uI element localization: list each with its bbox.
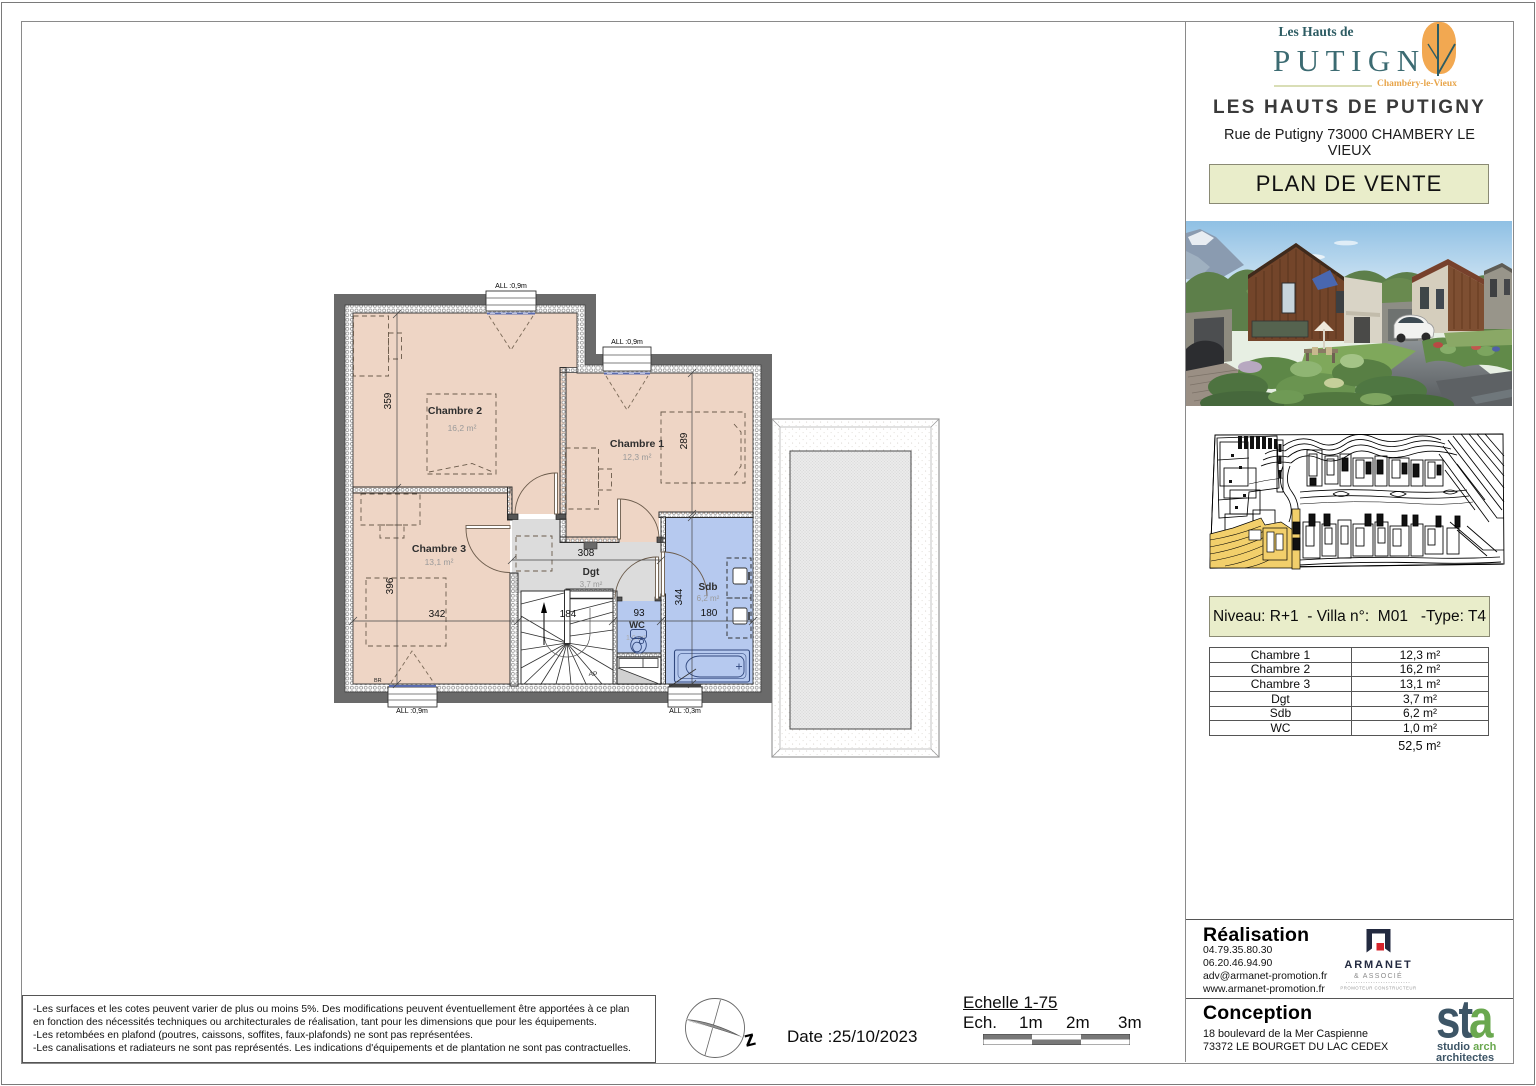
svg-text:architectes: architectes: [1436, 1052, 1494, 1063]
svg-text:Dgt: Dgt: [583, 567, 600, 578]
svg-text:ARMANET: ARMANET: [1344, 959, 1412, 971]
svg-text:180: 180: [701, 608, 718, 619]
svg-text:12,3 m²: 12,3 m²: [623, 452, 652, 462]
svg-text:Chambre 3: Chambre 3: [412, 543, 466, 555]
svg-text:PROMOTEUR CONSTRUCTEUR: PROMOTEUR CONSTRUCTEUR: [1340, 986, 1416, 991]
svg-text:16,2 m²: 16,2 m²: [448, 423, 477, 433]
svg-text:289: 289: [679, 432, 690, 449]
svg-text:Sdb: Sdb: [699, 582, 718, 593]
svg-text:ALL :0,9m: ALL :0,9m: [396, 708, 428, 715]
svg-text:ALL :0,9m: ALL :0,9m: [495, 283, 527, 290]
svg-text:ALL :0,9m: ALL :0,9m: [611, 339, 643, 346]
svg-text:ALL :0,3m: ALL :0,3m: [669, 708, 701, 715]
svg-text:93: 93: [633, 608, 645, 619]
svg-text:AP: AP: [589, 671, 598, 678]
svg-text:308: 308: [578, 548, 595, 559]
svg-text:13,1 m²: 13,1 m²: [425, 557, 454, 567]
svg-text:184: 184: [560, 609, 577, 620]
svg-text:& ASSOCIÉ: & ASSOCIÉ: [1354, 971, 1403, 980]
svg-text:z: z: [741, 1025, 758, 1052]
svg-text:BR: BR: [374, 678, 382, 684]
svg-text:WC: WC: [629, 620, 645, 631]
svg-text:Chambre 1: Chambre 1: [610, 438, 664, 450]
svg-text:342: 342: [429, 609, 446, 620]
svg-text:359: 359: [383, 392, 394, 409]
svg-text:3,7 m²: 3,7 m²: [580, 580, 603, 589]
svg-text:Chambre 2: Chambre 2: [428, 405, 482, 417]
svg-text:344: 344: [674, 588, 685, 605]
svg-text:6,2 m²: 6,2 m²: [697, 594, 720, 603]
svg-text:396: 396: [385, 577, 396, 594]
